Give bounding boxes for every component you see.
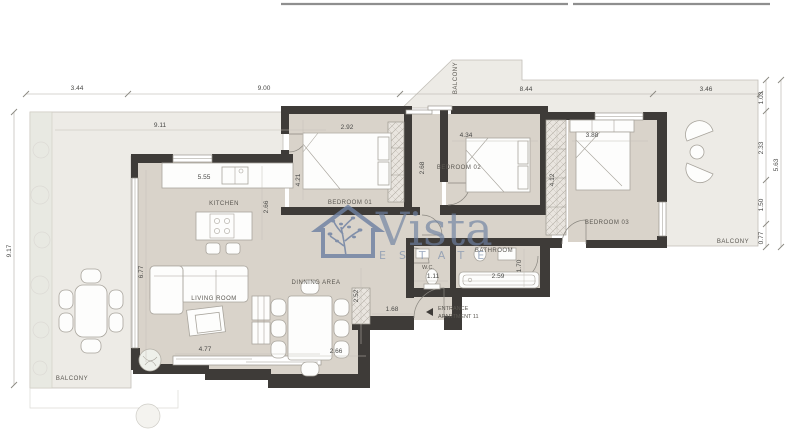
wall-segment [451,106,548,114]
chair-icon [271,341,286,358]
window-symbol [173,155,212,162]
dimension-label: 1.03 [758,91,765,104]
dimension-label: 3.44 [71,85,84,92]
room-label-balcony-top: BALCONY [453,62,459,94]
dimension-label: 8.44 [520,86,533,93]
wall-segment [586,240,667,248]
chair-icon [334,320,349,337]
dimension-label: 6.77 [138,265,145,278]
room-label-living: LIVING ROOM [191,296,237,302]
dimension-label: 9.17 [6,244,13,257]
chair-icon [109,313,123,332]
window-symbol [595,113,643,120]
plant-icon [136,404,160,428]
entrance-label: ENTRANCE [438,306,469,312]
dimension-label: 9.11 [154,122,167,129]
chair-icon [271,320,286,337]
room-label-bedroom1: BEDROOM 01 [328,200,373,206]
wall-segment [268,374,370,388]
bed-icon [570,120,634,190]
tv-cabinet-icon [252,296,270,344]
dimension-label: 5.55 [198,174,211,181]
room-label-balcony-right: BALCONY [717,239,749,245]
neighbour-terrace-outline [30,388,178,408]
side-table-icon [690,145,704,159]
bed-icon [303,133,391,189]
dimension-label: 2.59 [492,273,505,280]
dimension-label: 2.33 [758,141,765,154]
apartment-label: APARTMENT 11 [438,314,479,320]
wall-segment [540,112,546,208]
dimension-label: 1.68 [386,306,399,313]
dimension-label: 9.00 [258,85,271,92]
chair-icon [271,299,286,316]
wall-segment [545,112,595,120]
plant-icon [139,349,161,371]
watermark-brand: Vista [375,202,493,256]
wall-segment [281,106,406,114]
stool-icon [226,243,240,254]
chair-icon [59,290,73,309]
room-label-dining: DINNING AREA [291,280,340,286]
room-label-kitchen: KITCHEN [209,201,239,207]
chair-icon [301,362,319,376]
room-label-bedroom2: BEDROOM 02 [437,165,482,171]
dimension-label: 1.11 [427,273,440,280]
dimension-label: 1.50 [758,198,765,211]
wall-segment [404,106,412,215]
room-label-balcony-left: BALCONY [56,376,88,382]
dimension-label: 2.66 [330,348,343,355]
wall-segment [358,322,370,382]
dimension-label: 4.34 [460,132,473,139]
dimension-label: 0.77 [758,231,765,244]
dimension-label: 2.68 [419,161,426,174]
window-symbol [659,202,666,236]
kitchen-counter-icon [162,163,293,188]
dimension-label: 2.52 [353,289,360,302]
chair-icon [81,269,101,283]
dimension-label: 3.88 [586,132,599,139]
dimension-label: 2.66 [263,200,270,213]
wall-segment [544,238,562,248]
chair-icon [109,290,123,309]
wall-segment [212,154,293,163]
planter-strip [30,112,52,388]
dimension-label: 5.63 [773,158,780,171]
chair-icon [81,339,101,353]
window-symbol [132,178,138,348]
chair-icon [59,313,73,332]
floor-plan-page: 3.44 9.00 8.44 3.46 9.17 1.03 2.33 1.50 … [0,0,796,448]
dimension-label: 4.12 [549,173,556,186]
coffee-table-icon [187,306,226,336]
stool-icon [206,243,220,254]
dimension-label: 4.21 [295,173,302,186]
room-label-wc: W.C. [422,265,434,271]
wall-segment [657,118,667,202]
dimension-label: 2.92 [341,124,354,131]
room-label-bedroom3: BEDROOM 03 [585,220,630,226]
wall-segment [205,369,271,380]
chair-icon [334,299,349,316]
floor-plan-drawing: 3.44 9.00 8.44 3.46 9.17 1.03 2.33 1.50 … [0,0,796,448]
dimension-label: 4.77 [199,346,212,353]
dimension-label: 1.70 [516,259,523,272]
wall-segment [131,154,138,178]
dimension-label: 3.46 [700,86,713,93]
toilet-tank [424,284,440,289]
watermark-subtitle: ESTATE [379,249,497,262]
